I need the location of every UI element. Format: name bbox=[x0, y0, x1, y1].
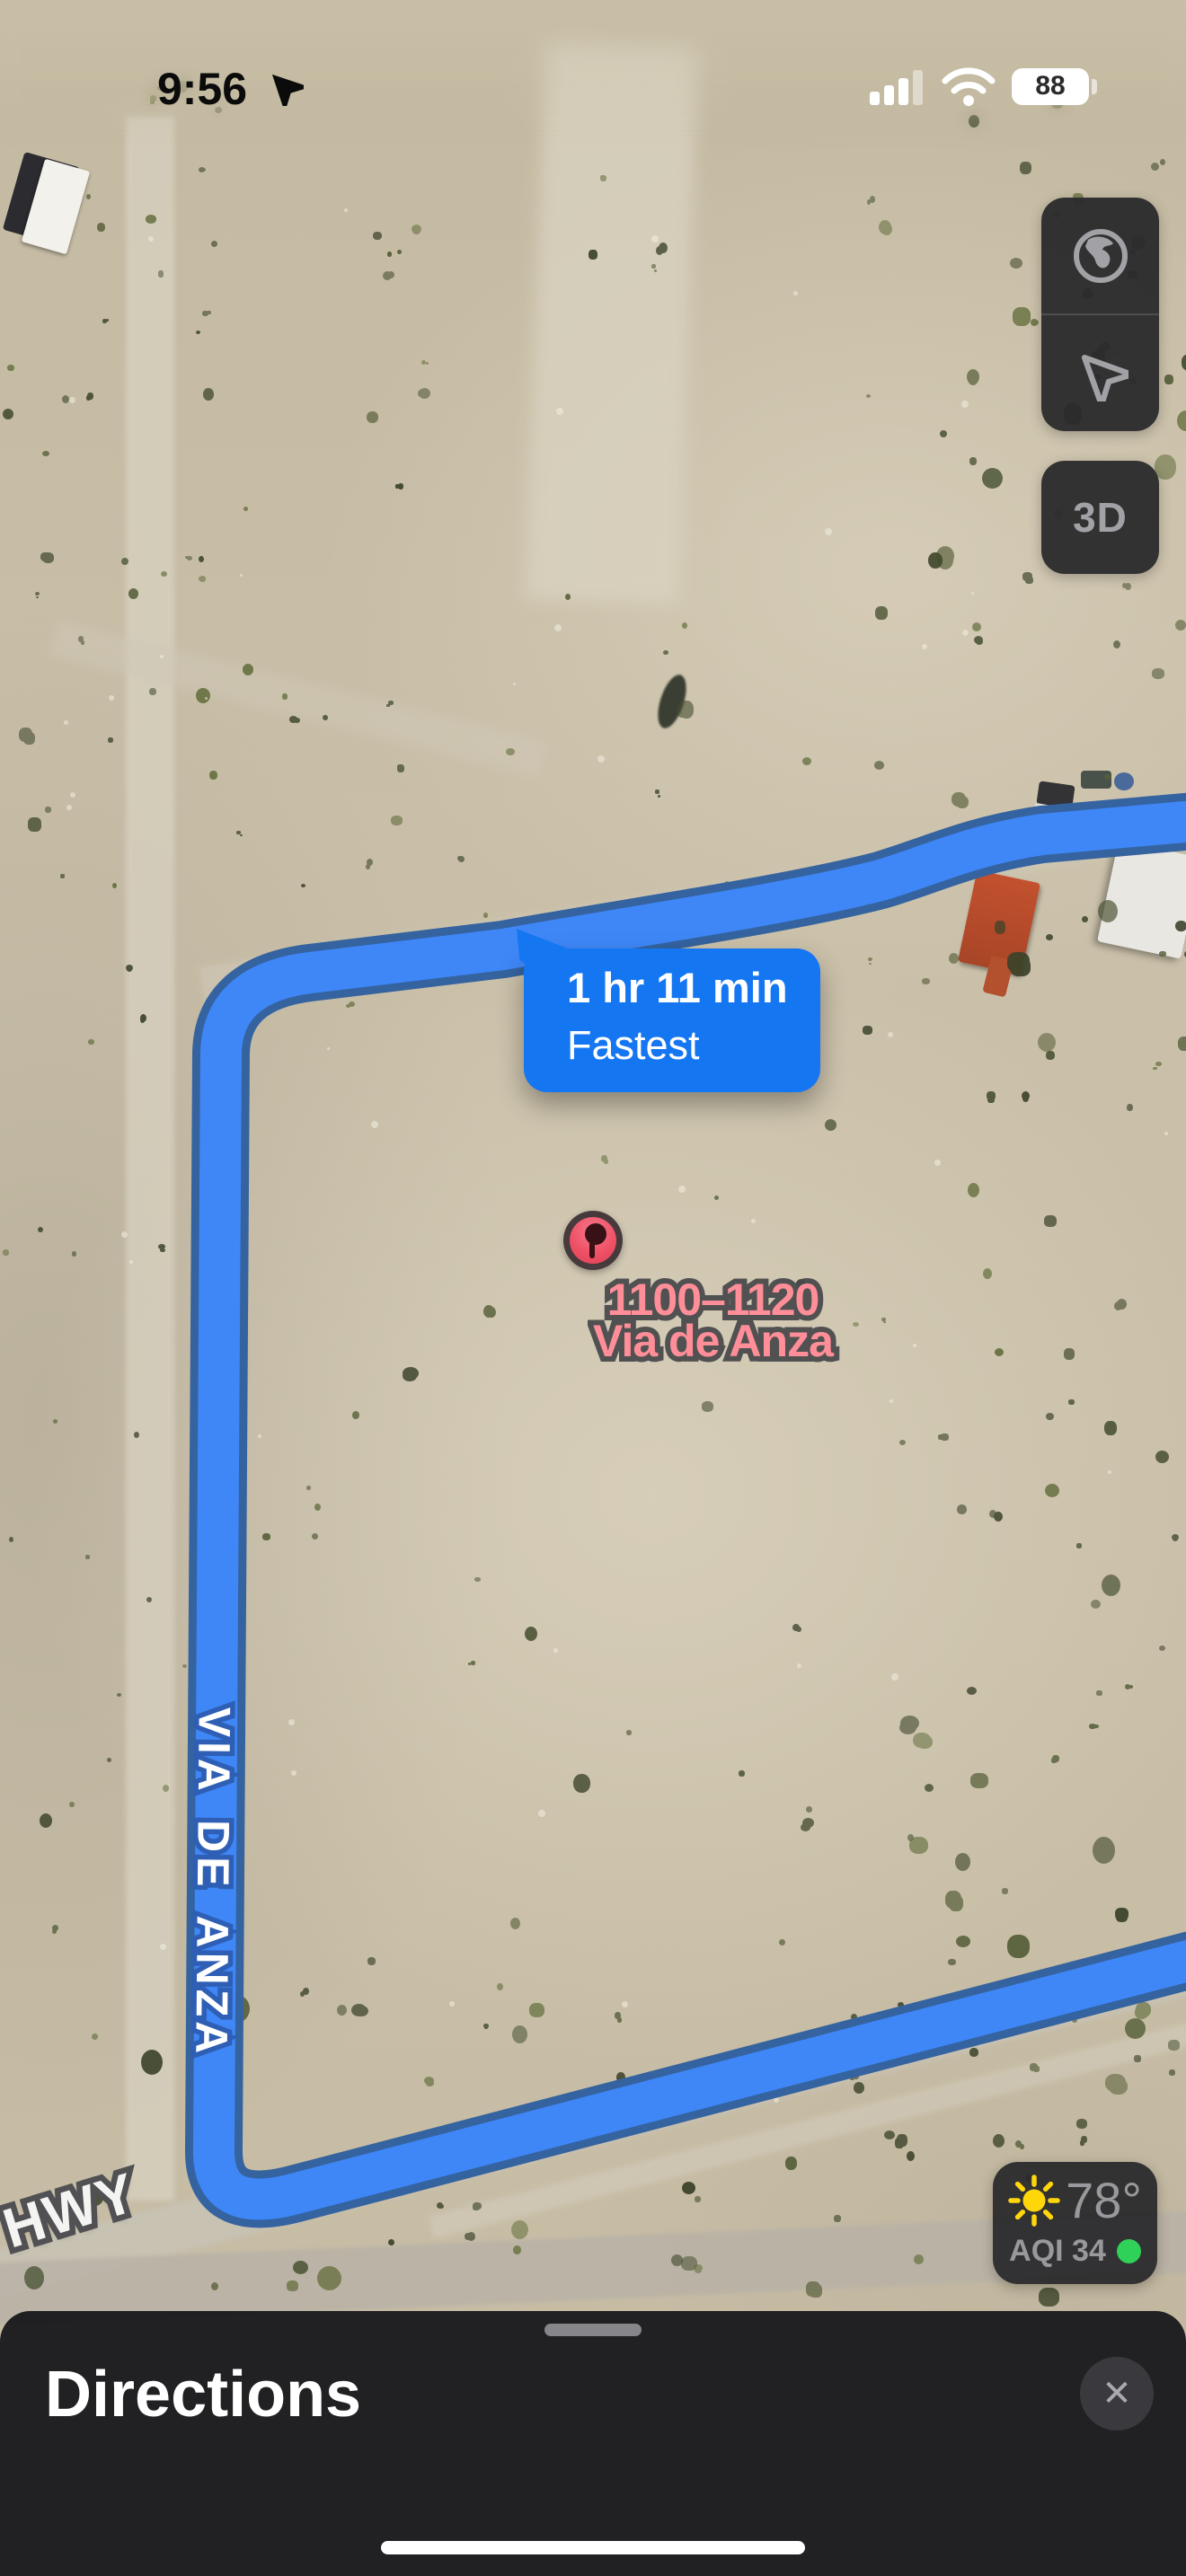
weather-widget[interactable]: 78° AQI 34 bbox=[993, 2162, 1157, 2284]
home-indicator[interactable] bbox=[381, 2541, 805, 2554]
map-controls-panel bbox=[1041, 198, 1159, 431]
iphone-screen: VIA DE ANZA VIA DE ANZA HWY HWY 1100–112… bbox=[0, 0, 1186, 2576]
address-street: Via de Anza bbox=[593, 1320, 833, 1362]
3d-button[interactable]: 3D bbox=[1041, 461, 1159, 574]
clock: 9:56 bbox=[135, 63, 270, 115]
sheet-title: Directions bbox=[45, 2358, 361, 2431]
wifi-icon bbox=[940, 66, 997, 106]
cellular-signal-icon bbox=[870, 68, 925, 105]
destination-pin-icon[interactable] bbox=[563, 1211, 623, 1270]
route-eta-callout[interactable]: 1 hr 11 min Fastest bbox=[524, 948, 820, 1092]
tracking-arrow-icon bbox=[1073, 346, 1128, 401]
directions-sheet: Directions ✕ bbox=[0, 2311, 1186, 2576]
aqi-value: AQI 34 bbox=[1009, 2234, 1106, 2269]
address-range: 1100–1120 bbox=[593, 1279, 833, 1320]
status-bar: 9:56 88 bbox=[0, 0, 1186, 119]
route-duration: 1 hr 11 min bbox=[567, 963, 788, 1012]
close-button[interactable]: ✕ bbox=[1080, 2357, 1154, 2430]
location-services-arrow-icon bbox=[266, 68, 304, 106]
sheet-grab-handle[interactable] bbox=[544, 2324, 642, 2336]
temperature: 78° bbox=[1066, 2171, 1142, 2229]
globe-icon bbox=[1070, 225, 1131, 287]
battery-icon: 88 bbox=[1012, 68, 1089, 105]
route-mode: Fastest bbox=[567, 1022, 700, 1069]
map-mode-button[interactable] bbox=[1041, 198, 1159, 313]
tracking-button[interactable] bbox=[1041, 315, 1159, 431]
sun-icon bbox=[1008, 2175, 1060, 2227]
aqi-status-dot bbox=[1117, 2239, 1141, 2263]
road-label-text: VIA DE ANZA bbox=[186, 1707, 239, 2058]
close-icon: ✕ bbox=[1102, 2373, 1132, 2414]
3d-button-label: 3D bbox=[1073, 493, 1128, 542]
battery-percent: 88 bbox=[1035, 71, 1065, 101]
